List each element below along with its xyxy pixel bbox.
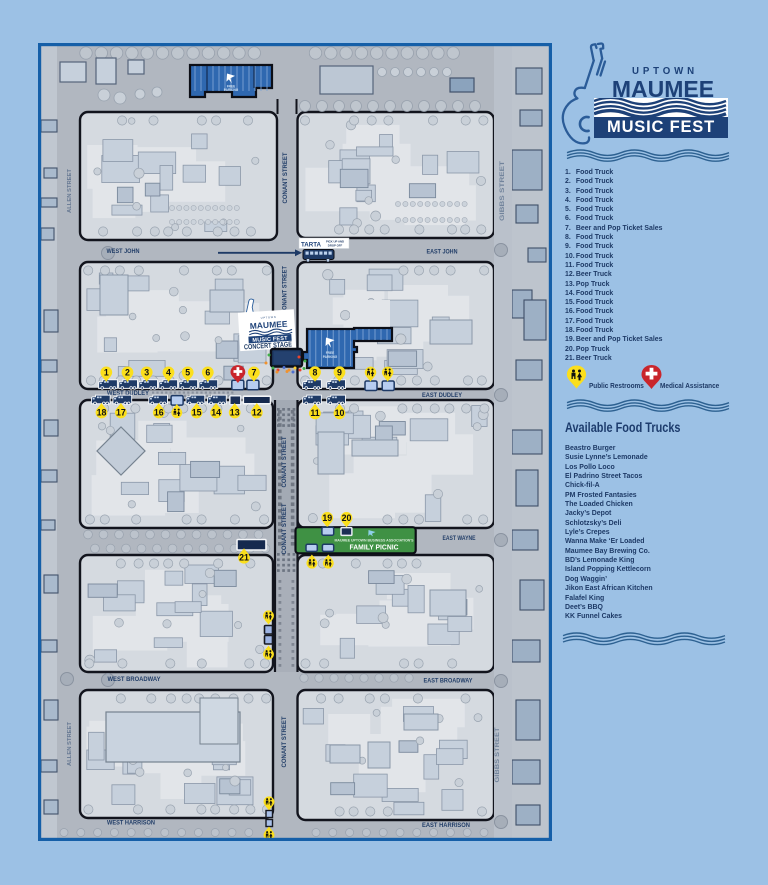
svg-text:17: 17 [116, 407, 126, 417]
svg-text:WEST HARRISON: WEST HARRISON [107, 820, 155, 827]
svg-text:5: 5 [185, 368, 190, 378]
svg-text:EAST JOHN: EAST JOHN [427, 249, 458, 256]
svg-text:1: 1 [104, 368, 109, 378]
svg-text:14: 14 [211, 407, 221, 417]
svg-text:8: 8 [313, 368, 318, 378]
svg-text:EAST BROADWAY: EAST BROADWAY [424, 678, 474, 685]
svg-text:WEST JOHN: WEST JOHN [107, 248, 140, 255]
svg-text:6: 6 [205, 368, 210, 378]
svg-text:EAST HARRISON: EAST HARRISON [422, 822, 470, 829]
svg-text:FAMILY PICNIC: FAMILY PICNIC [350, 543, 399, 552]
svg-text:GIBBS STREET: GIBBS STREET [495, 727, 501, 782]
svg-text:CONANT STREET: CONANT STREET [282, 266, 289, 314]
svg-text:ALLEN STREET: ALLEN STREET [67, 722, 73, 766]
svg-text:PARKING: PARKING [323, 355, 338, 359]
svg-text:7: 7 [251, 368, 256, 378]
svg-text:GIBBS STREET: GIBBS STREET [500, 161, 506, 221]
svg-text:PARKING: PARKING [224, 88, 239, 92]
svg-text:ALLEN STREET: ALLEN STREET [67, 169, 73, 213]
svg-text:18: 18 [97, 407, 107, 417]
svg-text:WEST BROADWAY: WEST BROADWAY [108, 676, 162, 683]
svg-text:CONANT STREET: CONANT STREET [282, 152, 289, 203]
svg-text:CONANT STREET: CONANT STREET [281, 716, 288, 767]
svg-text:CONANT STREET: CONANT STREET [281, 503, 288, 554]
svg-text:11: 11 [310, 408, 319, 418]
svg-text:20: 20 [342, 513, 352, 523]
svg-text:3: 3 [144, 368, 149, 378]
svg-text:21: 21 [239, 553, 249, 563]
svg-text:2: 2 [125, 368, 130, 378]
svg-text:DROP OFF: DROP OFF [328, 244, 343, 248]
svg-text:4: 4 [166, 368, 171, 378]
svg-text:12: 12 [252, 407, 262, 417]
svg-text:EAST DUDLEY: EAST DUDLEY [422, 392, 463, 399]
svg-text:13: 13 [230, 407, 240, 417]
svg-text:EAST WAYNE: EAST WAYNE [443, 535, 476, 542]
svg-text:19: 19 [322, 513, 332, 523]
svg-text:9: 9 [337, 368, 342, 378]
svg-text:TARTA: TARTA [301, 241, 322, 248]
svg-text:10: 10 [335, 408, 345, 418]
svg-text:CONANT STREET: CONANT STREET [281, 436, 288, 487]
svg-text:16: 16 [154, 407, 164, 417]
svg-text:15: 15 [192, 407, 202, 417]
